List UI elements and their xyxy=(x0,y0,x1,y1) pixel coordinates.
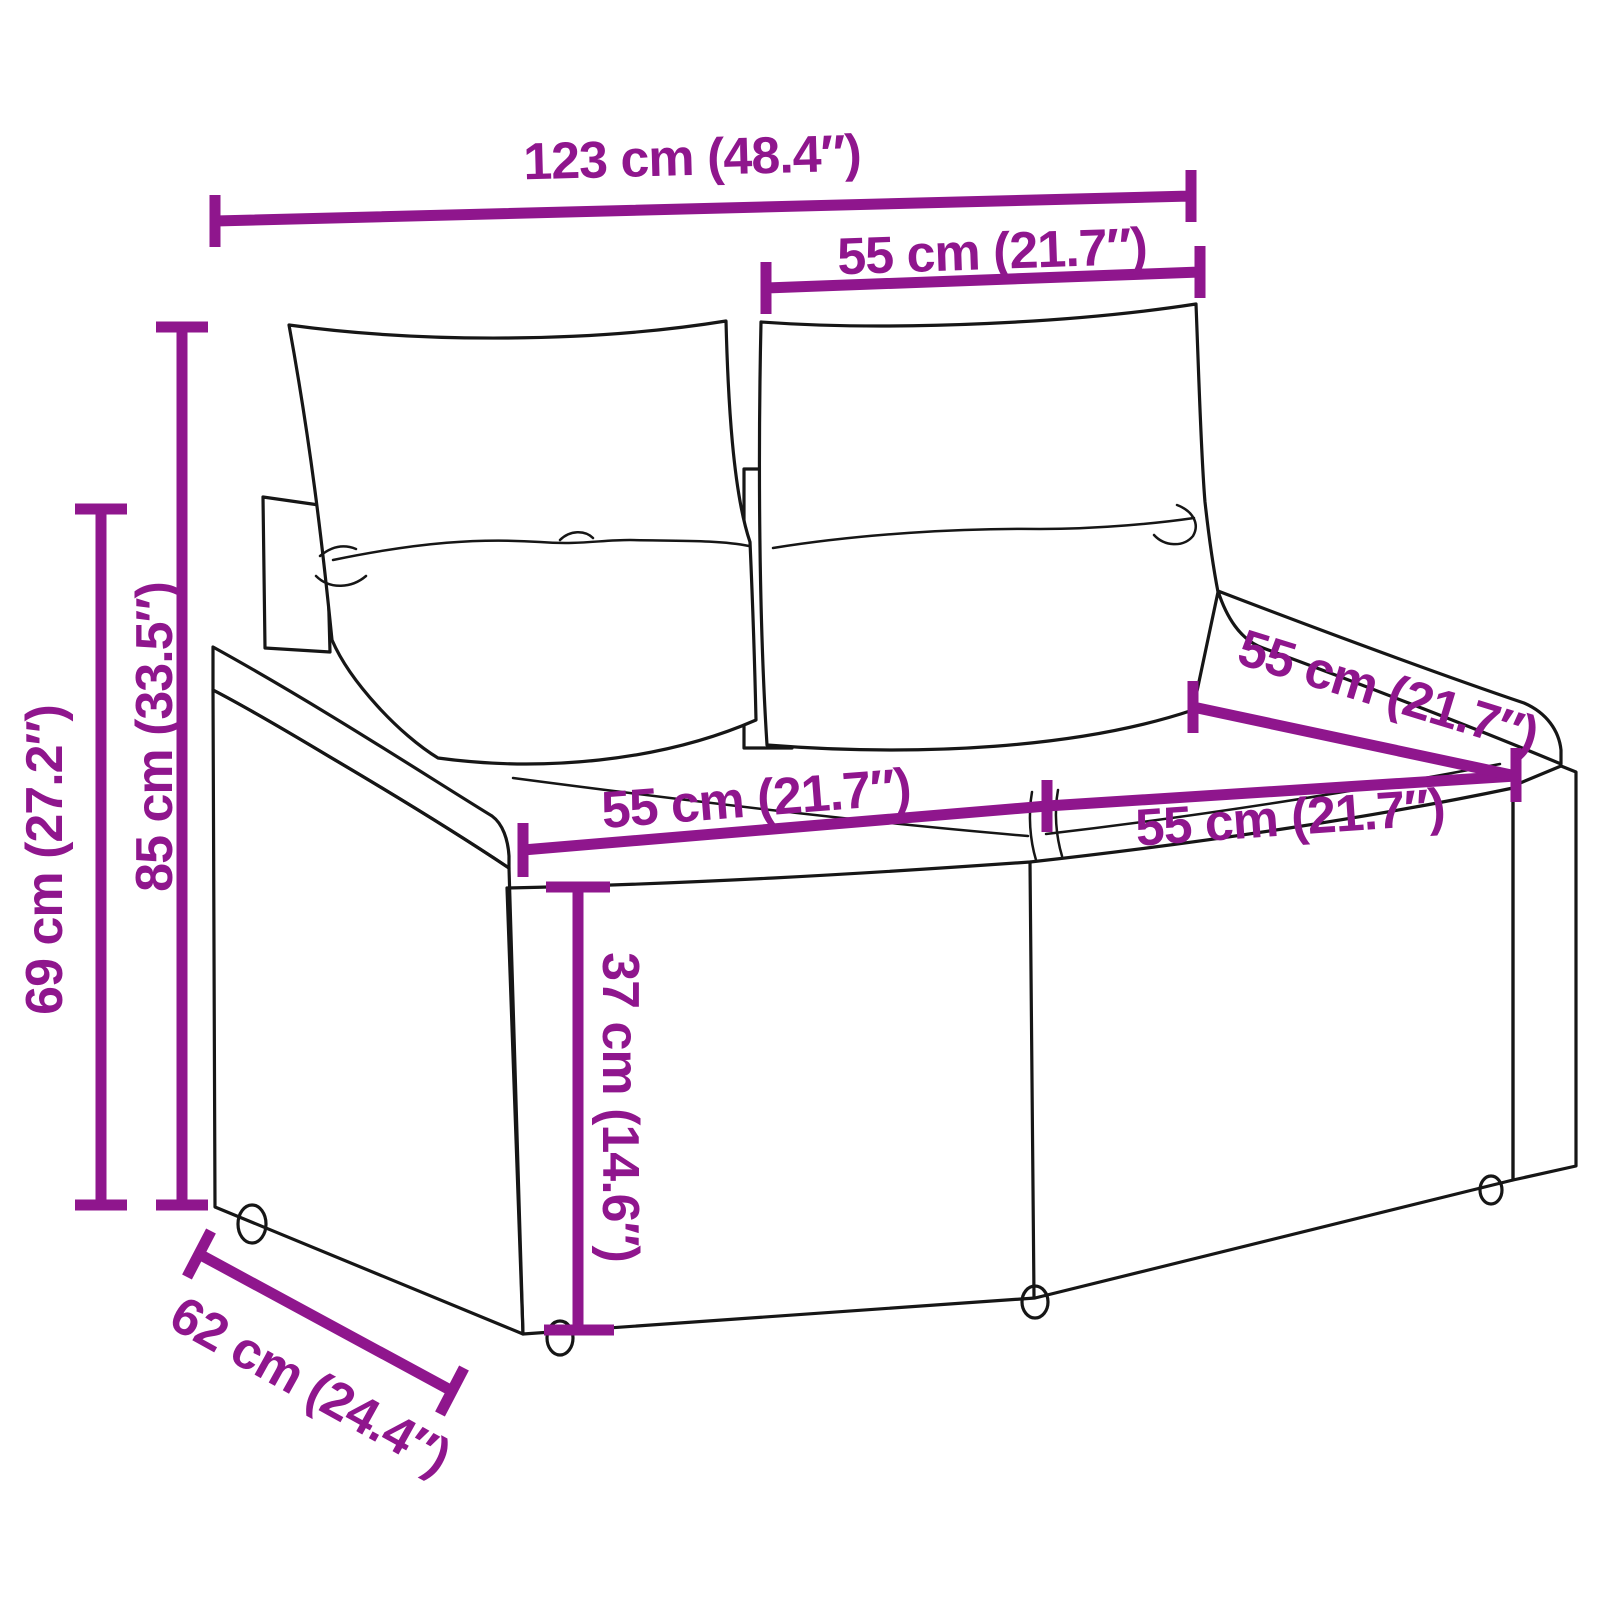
dim-label-seat-height: 37 cm (14.6″) xyxy=(590,952,650,1262)
foot-front-right xyxy=(1480,1176,1502,1204)
dim-label-armrest-height: 69 cm (27.2″) xyxy=(15,705,75,1015)
dim-label-overall-height: 85 cm (33.5″) xyxy=(125,582,185,892)
front-panel xyxy=(507,788,1513,1334)
dim-armrest-height-line xyxy=(75,509,127,1205)
right-armrest-face xyxy=(1513,766,1576,1180)
sofa-feet xyxy=(238,1176,1502,1355)
back-cushion-left xyxy=(289,321,756,764)
seat-module-seam xyxy=(1030,862,1034,1297)
foot-left xyxy=(238,1205,266,1243)
back-cushion-right xyxy=(759,304,1218,750)
product-dimension-diagram: 123 cm (48.4″) 55 cm (21.7″) 55 cm (21.7… xyxy=(0,0,1600,1600)
seat-front-panel xyxy=(507,788,1513,1334)
back-cushions xyxy=(289,304,1218,764)
dim-label-back-cushion-width: 55 cm (21.7″) xyxy=(836,217,1148,288)
dim-label-overall-width: 123 cm (48.4″) xyxy=(522,124,861,193)
